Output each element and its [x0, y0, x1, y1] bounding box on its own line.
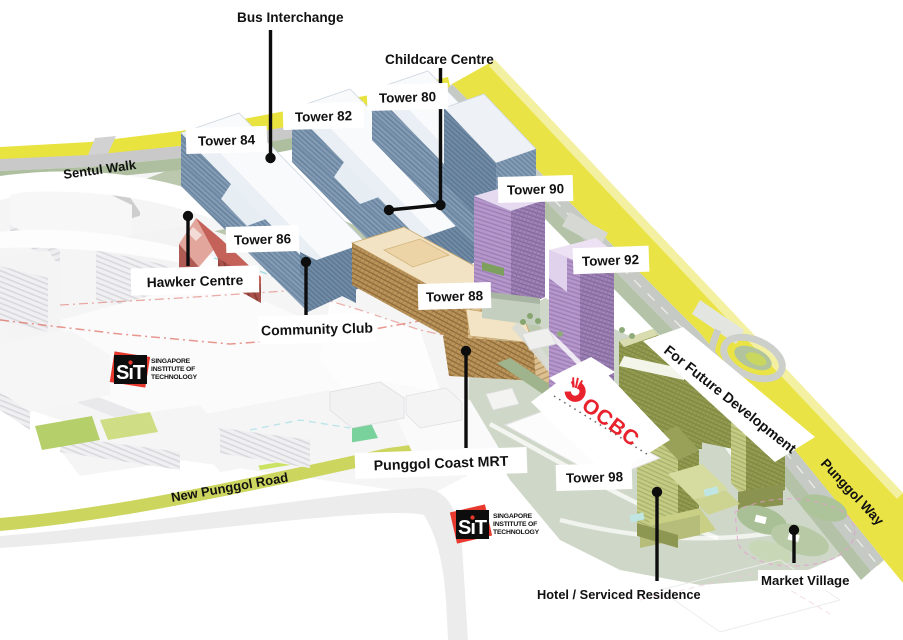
- svg-text:Market Village: Market Village: [761, 573, 849, 588]
- svg-text:SINGAPORE: SINGAPORE: [151, 358, 191, 365]
- svg-text:Childcare Centre: Childcare Centre: [385, 52, 494, 67]
- svg-text:Hotel / Serviced Residence: Hotel / Serviced Residence: [537, 587, 701, 602]
- svg-text:SINGAPORE: SINGAPORE: [493, 513, 533, 520]
- svg-text:INSTITUTE OF: INSTITUTE OF: [493, 521, 537, 528]
- svg-text:Tower 80: Tower 80: [379, 89, 436, 105]
- svg-text:Bus Interchange: Bus Interchange: [237, 10, 344, 25]
- svg-text:Tower 98: Tower 98: [566, 469, 624, 486]
- svg-text:SıT: SıT: [458, 517, 487, 539]
- svg-text:Tower 92: Tower 92: [582, 252, 640, 269]
- svg-text:Tower 84: Tower 84: [198, 132, 256, 149]
- svg-text:Tower 86: Tower 86: [234, 231, 291, 247]
- svg-text:INSTITUTE OF: INSTITUTE OF: [151, 366, 195, 373]
- svg-text:Tower 88: Tower 88: [426, 288, 484, 305]
- svg-text:Community Club: Community Club: [261, 320, 373, 339]
- svg-text:TECHNOLOGY: TECHNOLOGY: [151, 374, 198, 381]
- svg-text:TECHNOLOGY: TECHNOLOGY: [493, 529, 540, 536]
- svg-text:Tower 90: Tower 90: [507, 181, 564, 197]
- svg-text:Tower 82: Tower 82: [295, 108, 352, 124]
- svg-text:Hawker Centre: Hawker Centre: [147, 273, 244, 291]
- svg-text:SıT: SıT: [116, 362, 145, 384]
